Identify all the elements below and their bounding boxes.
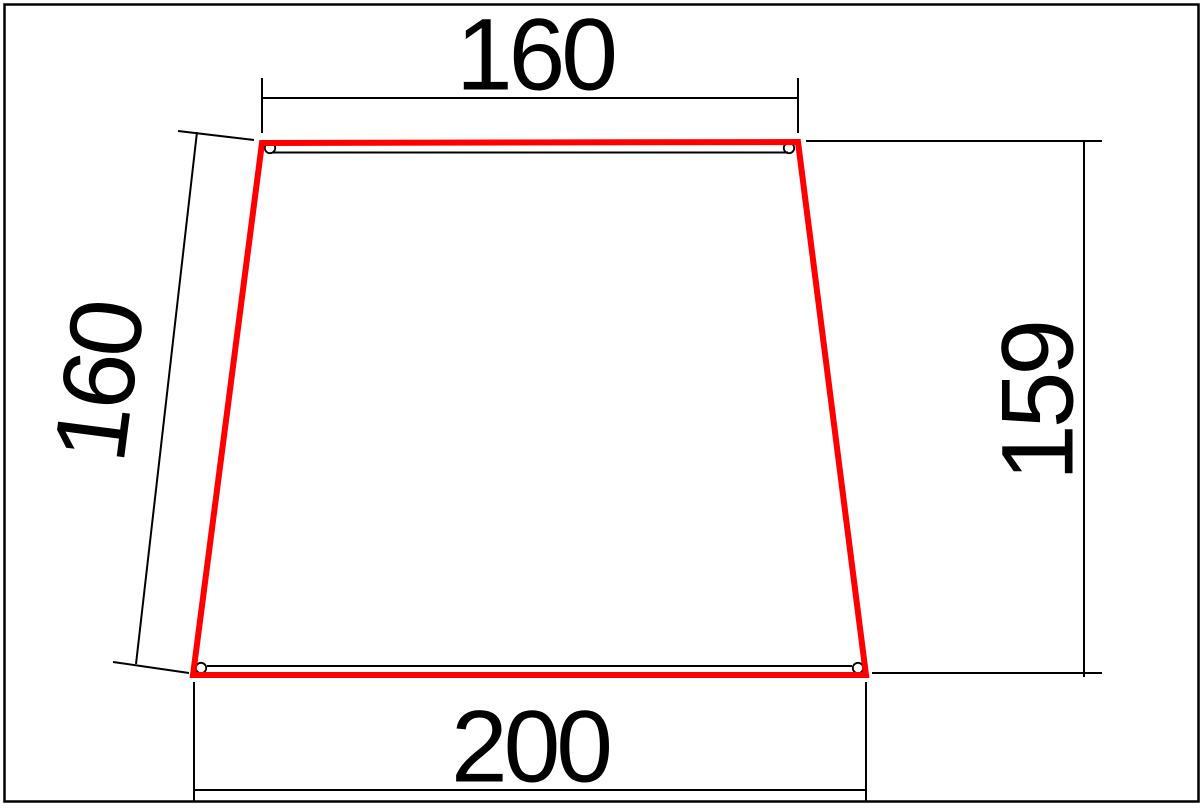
dimension-label-bottom-width: 200 [451,690,609,804]
extension-line [178,131,254,140]
dimension-left-slant: 160 [32,131,254,673]
dimension-label-top-width: 160 [456,0,614,112]
extension-line [113,662,189,673]
dimension-top-width: 160 [262,0,798,133]
dimension-right-height: 159 [806,141,1102,677]
dimension-bottom-width: 200 [194,682,866,804]
technical-drawing-svg: 160 200 159 160 [0,0,1203,808]
dimension-label-left-slant: 160 [32,296,165,468]
dimension-label-right-height: 159 [981,323,1095,481]
panel-outline [193,142,866,675]
drawing-canvas: 160 200 159 160 [0,0,1203,808]
